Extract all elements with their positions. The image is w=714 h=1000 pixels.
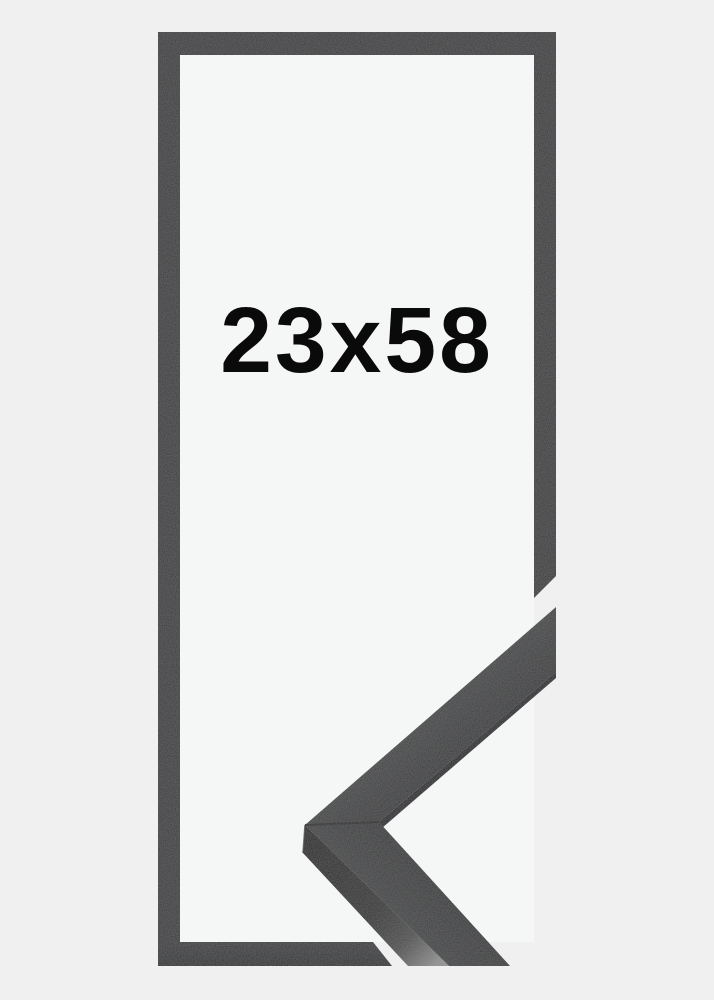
frame-outline-left [158,32,180,966]
frame-outline-top [158,32,556,55]
size-label: 23x58 [158,294,556,387]
product-image: 23x58 [0,0,714,1000]
frame-outline-bottom [158,942,392,966]
frame-illustration [0,0,714,1000]
